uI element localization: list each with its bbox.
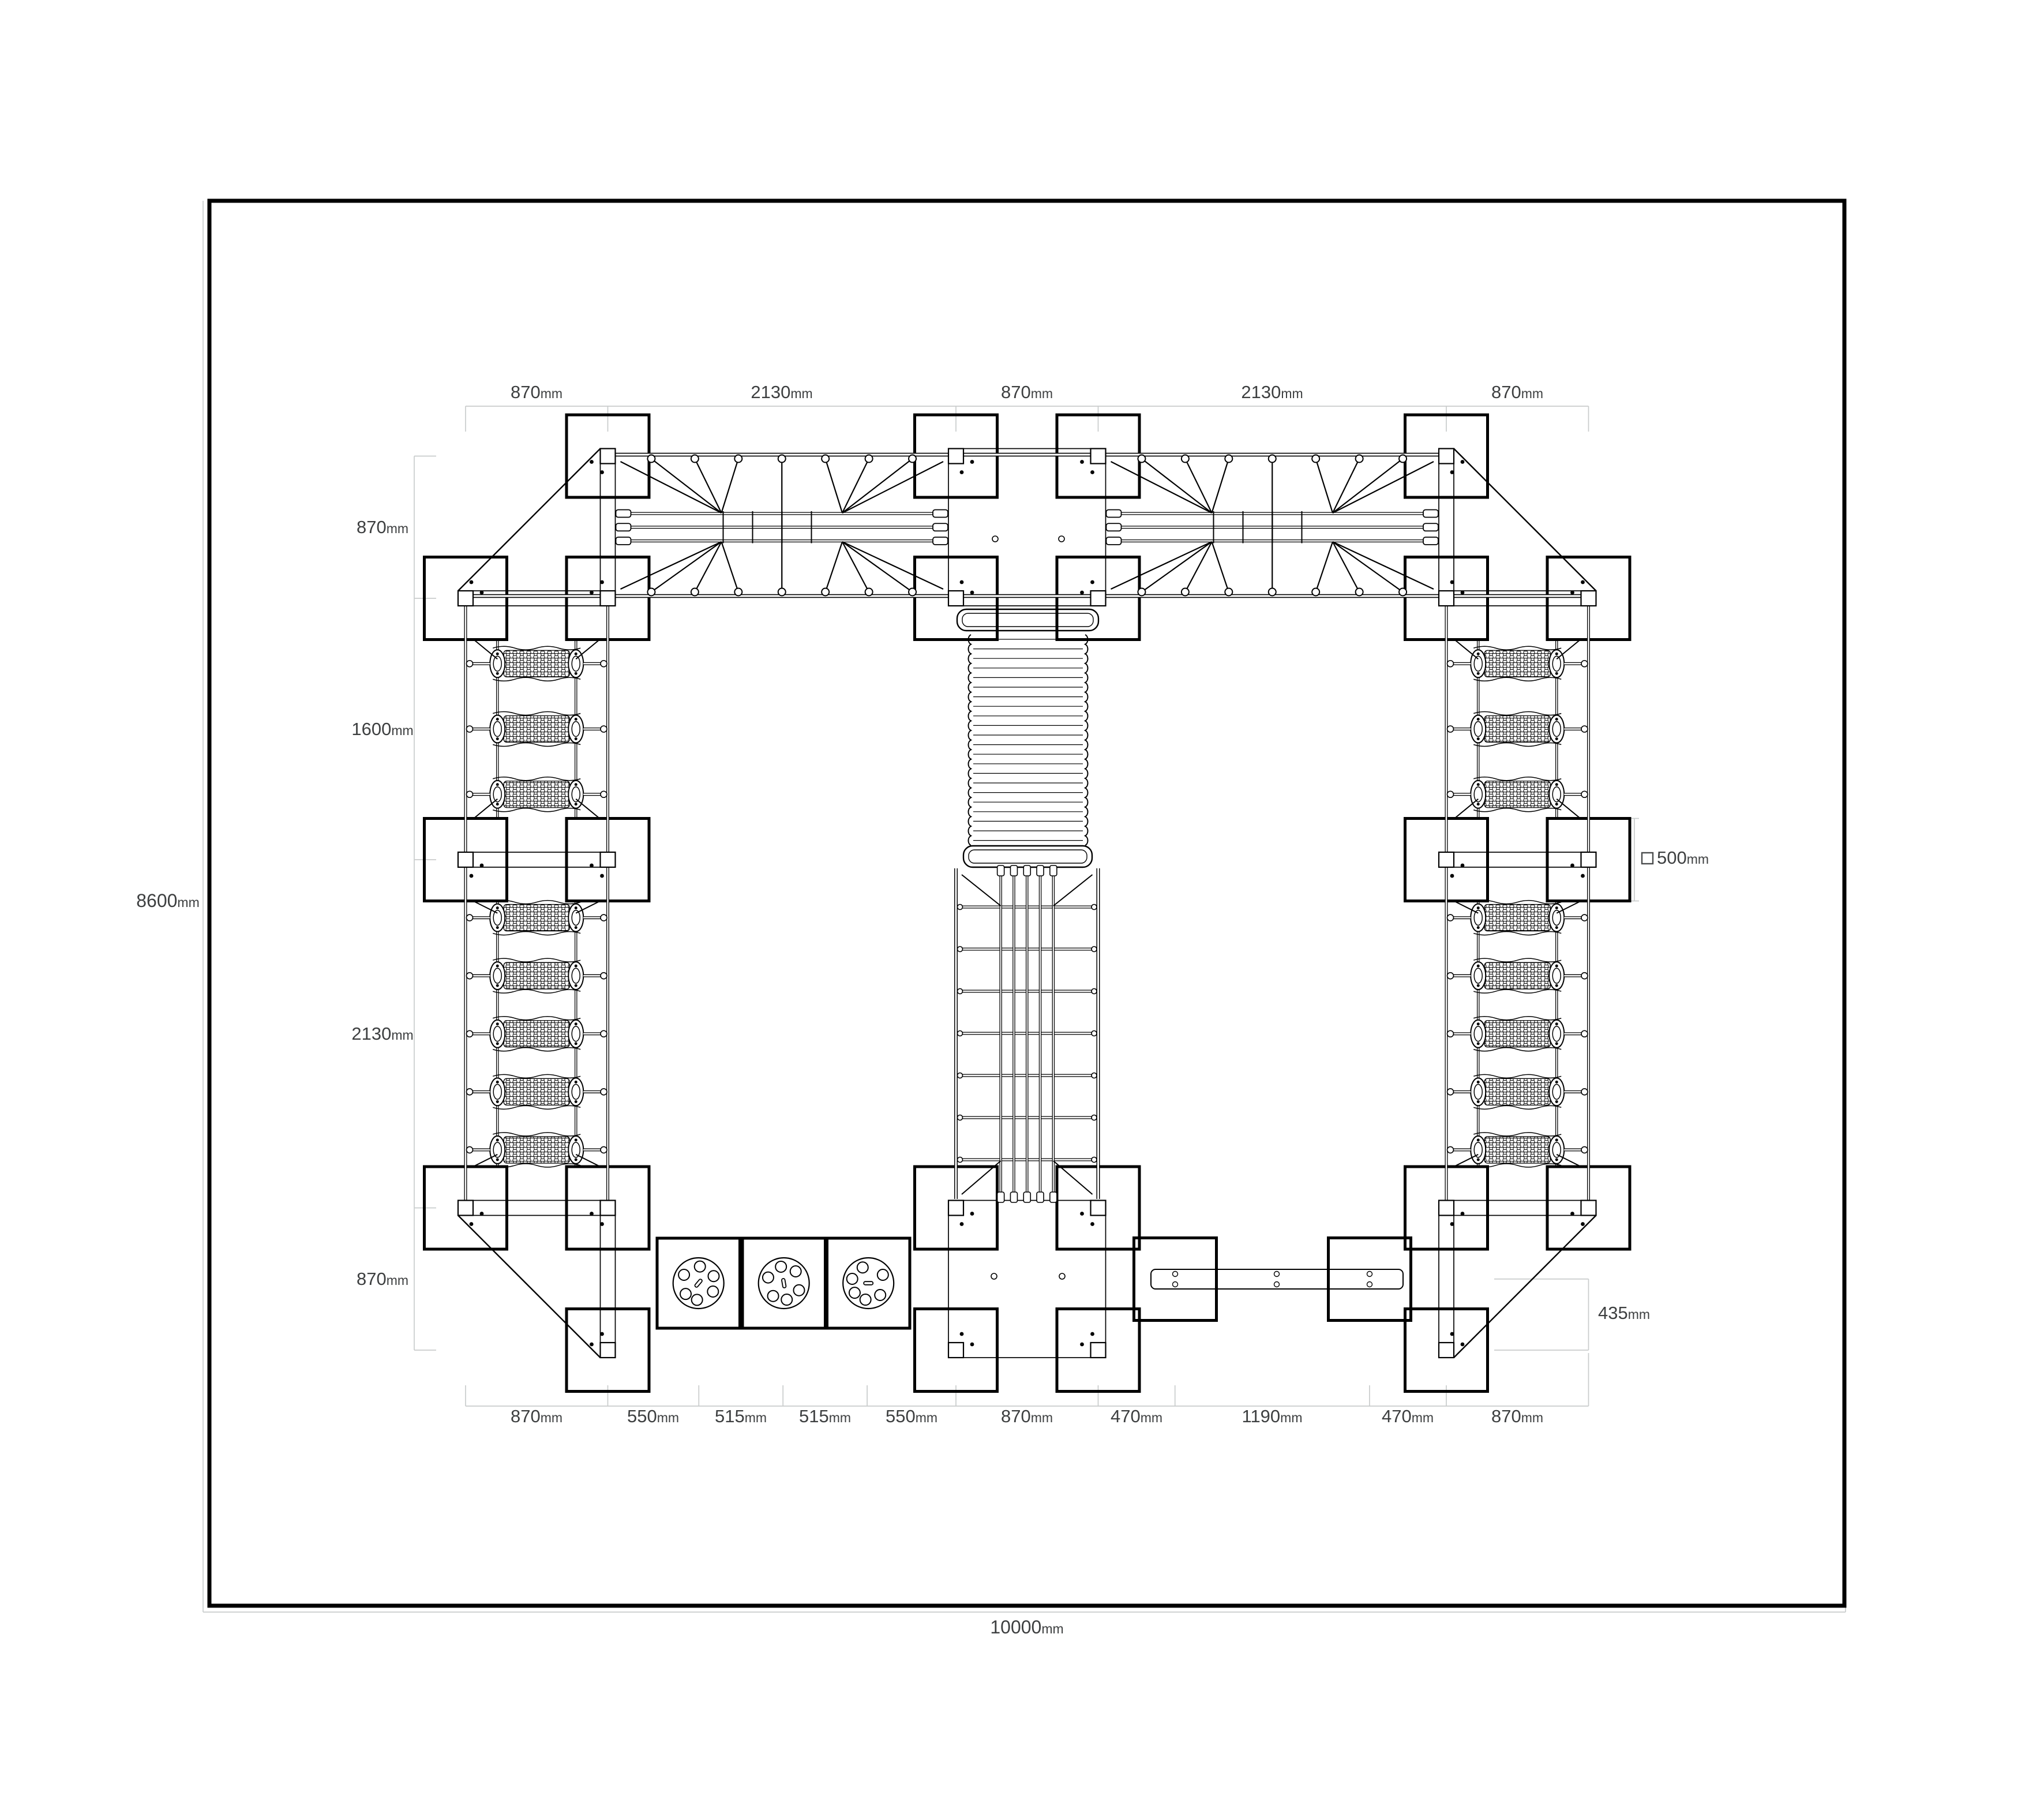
- hub-bolt: [1555, 737, 1558, 740]
- deck-bolt: [960, 1222, 964, 1226]
- axle-joint: [467, 661, 473, 667]
- post: [458, 852, 473, 867]
- dim-bottom-10: 870mm: [1491, 1406, 1543, 1426]
- deck-bolt: [590, 864, 594, 868]
- hub-bolt: [575, 1022, 577, 1025]
- hub-bolt: [496, 718, 499, 721]
- hub-bolt: [496, 1022, 499, 1025]
- post: [1581, 1201, 1596, 1216]
- post: [458, 1201, 473, 1216]
- hub-bolt: [1477, 653, 1480, 655]
- dim-bottom-6: 870mm: [1001, 1406, 1053, 1426]
- dim-bottom-8: 1190mm: [1242, 1406, 1303, 1426]
- net-rope: [722, 459, 738, 513]
- deck-bolt: [970, 591, 974, 595]
- spinner-hole: [857, 1262, 868, 1273]
- rope-eyelet: [1225, 455, 1232, 463]
- net-rope: [826, 459, 842, 513]
- deck-bolt: [992, 536, 998, 542]
- hub-bolt: [1477, 984, 1480, 987]
- step-contour: [493, 990, 580, 993]
- dim-bottom-7: 470mm: [1111, 1406, 1162, 1426]
- rung-joint: [1092, 1031, 1097, 1036]
- step-contour: [1473, 743, 1561, 747]
- end-rope: [1456, 799, 1478, 818]
- step-hub: [493, 722, 501, 737]
- hub-bolt: [1555, 965, 1558, 968]
- spinner-hole: [875, 1290, 886, 1300]
- cable-fitting: [933, 523, 948, 531]
- rope-eyelet: [865, 455, 873, 463]
- hub-bolt: [496, 783, 499, 786]
- step-contour: [1473, 1133, 1561, 1136]
- net-rope: [1142, 459, 1212, 513]
- spinner-hole: [692, 1294, 703, 1305]
- step-hub: [572, 968, 580, 983]
- spinner-hole: [860, 1294, 871, 1305]
- hub-bolt: [575, 1138, 577, 1141]
- deck-bolt: [1080, 591, 1084, 595]
- hub-bolt: [1555, 1158, 1558, 1161]
- hub-bolt: [575, 803, 577, 805]
- post: [948, 449, 963, 464]
- wobble-step: [504, 650, 569, 677]
- end-rope: [475, 799, 497, 818]
- hub-bolt: [575, 984, 577, 987]
- step-hub: [1552, 722, 1561, 737]
- rope-eyelet: [909, 455, 916, 463]
- hub-bolt: [1477, 1042, 1480, 1045]
- wobble-step: [504, 781, 569, 808]
- axle-joint: [1447, 1089, 1454, 1095]
- step-hub: [1474, 722, 1482, 737]
- spinner-hole: [708, 1270, 719, 1281]
- net-rope: [842, 459, 869, 513]
- hub-bolt: [1555, 1081, 1558, 1084]
- dim-left-2: 1600mm: [351, 719, 413, 739]
- crawl-tube-wall: [1085, 635, 1088, 845]
- step-contour: [493, 1133, 580, 1136]
- axle-joint: [1447, 915, 1454, 921]
- hub-bolt: [1477, 926, 1480, 929]
- strand-fork: [1010, 865, 1017, 876]
- step-contour: [1473, 1105, 1561, 1109]
- post: [601, 591, 616, 606]
- post: [601, 449, 616, 464]
- corner-barrier: [458, 1216, 601, 1358]
- net-rope: [651, 542, 722, 592]
- net-rope: [842, 542, 943, 589]
- crawl-tube-collar: [969, 850, 1087, 863]
- hub-bolt: [1477, 1138, 1480, 1141]
- step-contour: [493, 1048, 580, 1051]
- cable-fitting: [1107, 510, 1122, 518]
- wobble-step: [1484, 962, 1550, 989]
- deck-bolt: [1461, 864, 1465, 868]
- step-hub: [1552, 1084, 1561, 1099]
- axle-joint: [1581, 791, 1588, 797]
- net-rope: [1212, 459, 1229, 513]
- legend-post-size: 500mm: [1657, 848, 1709, 868]
- dim-right-435: 435mm: [1598, 1303, 1650, 1323]
- hub-bolt: [575, 653, 577, 655]
- deck-bolt: [1581, 1222, 1585, 1226]
- strand-fork: [1037, 865, 1044, 876]
- step-contour: [1473, 1048, 1561, 1051]
- rope-eyelet: [1182, 455, 1189, 463]
- post: [1581, 591, 1596, 606]
- hub-bolt: [575, 1100, 577, 1103]
- step-contour: [1473, 712, 1561, 715]
- net-rope: [695, 542, 721, 592]
- rope-eyelet: [1269, 455, 1276, 463]
- spinner-hole: [707, 1286, 718, 1297]
- net-brace: [1053, 875, 1093, 906]
- end-rope: [576, 640, 598, 659]
- post: [1439, 449, 1454, 464]
- spinner-hole: [793, 1285, 804, 1296]
- deck-bolt: [1090, 580, 1094, 584]
- spinner-hole: [847, 1273, 858, 1284]
- hub-bolt: [1477, 783, 1480, 786]
- deck-bolt: [1090, 1332, 1094, 1336]
- step-hub: [493, 1026, 501, 1041]
- net-rope: [621, 542, 722, 589]
- hub-bolt: [496, 672, 499, 675]
- rope-eyelet: [1312, 589, 1319, 596]
- rope-eyelet: [647, 589, 655, 596]
- deck-bolt: [1450, 470, 1454, 474]
- step-hub: [1552, 968, 1561, 983]
- rope-eyelet: [778, 455, 786, 463]
- net-rope: [842, 462, 943, 513]
- deck-bolt: [1581, 580, 1585, 584]
- net-rope: [695, 459, 721, 513]
- rung-joint: [1092, 947, 1097, 952]
- wobble-step: [1484, 1021, 1550, 1047]
- step-hub: [572, 1084, 580, 1099]
- hub-bolt: [496, 653, 499, 655]
- step-hub: [1552, 1026, 1561, 1041]
- spinner-hole: [781, 1294, 792, 1305]
- dim-bottom-2: 550mm: [627, 1406, 679, 1426]
- dim-bottom-3: 515mm: [715, 1406, 767, 1426]
- spinner-hole: [849, 1287, 860, 1298]
- post: [1091, 591, 1106, 606]
- end-rope: [576, 799, 598, 818]
- dim-top-5: 870mm: [1491, 382, 1543, 402]
- step-hub: [493, 968, 501, 983]
- post-pad: [1329, 1238, 1411, 1321]
- hub-bolt: [1555, 926, 1558, 929]
- axle-joint: [601, 973, 607, 979]
- hub-bolt: [496, 803, 499, 805]
- hub-bolt: [1555, 653, 1558, 655]
- rung-joint: [958, 1115, 963, 1120]
- hub-bolt: [575, 1081, 577, 1084]
- hub-bolt: [575, 926, 577, 929]
- hub-bolt: [1477, 672, 1480, 675]
- deck-bolt: [1080, 1212, 1084, 1216]
- axle-joint: [601, 726, 607, 732]
- step-contour: [1473, 958, 1561, 962]
- deck-bolt: [1450, 1222, 1454, 1226]
- wobble-step: [504, 962, 569, 989]
- deck-bolt: [960, 470, 964, 474]
- wobble-step: [504, 716, 569, 743]
- hub-bolt: [1555, 672, 1558, 675]
- crawl-tube-collar: [963, 846, 1092, 867]
- post-legend-icon: [1642, 853, 1653, 864]
- cable-fitting: [933, 510, 948, 518]
- axle-joint: [1581, 726, 1588, 732]
- dim-bottom-5: 550mm: [886, 1406, 937, 1426]
- corner-barrier: [1454, 449, 1596, 591]
- axle-joint: [601, 661, 607, 667]
- step-contour: [493, 1105, 580, 1109]
- deck-bolt: [1080, 1343, 1084, 1347]
- post: [1439, 591, 1454, 606]
- rope-eyelet: [647, 455, 655, 463]
- wobble-step: [1484, 1078, 1550, 1105]
- deck-bolt: [1581, 874, 1585, 878]
- deck-bolt: [1059, 1273, 1065, 1279]
- step-contour: [493, 958, 580, 962]
- deck-bolt: [1450, 580, 1454, 584]
- hub-bolt: [575, 965, 577, 968]
- net-rope: [1185, 459, 1212, 513]
- post: [458, 591, 473, 606]
- deck-bolt: [600, 1222, 604, 1226]
- hub-bolt: [1477, 1081, 1480, 1084]
- post: [1091, 449, 1106, 464]
- post: [601, 852, 616, 867]
- deck-bolt: [1570, 591, 1574, 595]
- hub-bolt: [1555, 1042, 1558, 1045]
- net-rope: [1333, 542, 1359, 592]
- rope-eyelet: [1399, 455, 1407, 463]
- wobble-step: [504, 1021, 569, 1047]
- axle-joint: [1581, 661, 1588, 667]
- deck-bolt: [1090, 1222, 1094, 1226]
- net-rope: [1111, 462, 1212, 513]
- end-rope: [1557, 640, 1579, 659]
- axle-joint: [467, 1146, 473, 1153]
- corner-barrier: [1454, 1216, 1596, 1358]
- post: [948, 591, 963, 606]
- cable-fitting: [1423, 537, 1438, 545]
- deck-bolt: [480, 1212, 484, 1216]
- step-hub: [1474, 1084, 1482, 1099]
- wobble-step: [1484, 1137, 1550, 1163]
- dim-left-1: 870mm: [357, 517, 408, 537]
- hub-bolt: [496, 1138, 499, 1141]
- deck-bolt: [1450, 1332, 1454, 1336]
- step-hub: [493, 1084, 501, 1099]
- rope-eyelet: [1225, 589, 1232, 596]
- hub-bolt: [575, 1042, 577, 1045]
- hub-bolt: [496, 1081, 499, 1084]
- crawl-tube-collar: [962, 613, 1093, 627]
- axle-joint: [1581, 973, 1588, 979]
- post: [1439, 1201, 1454, 1216]
- strand-fork: [1037, 1192, 1044, 1202]
- strand-fork: [997, 865, 1004, 876]
- step-contour: [1473, 990, 1561, 993]
- beam-bolt: [1367, 1272, 1372, 1277]
- plan-drawing: 870mm 2130mm 870mm 2130mm 870mm 870mm 16…: [0, 0, 2044, 1799]
- dim-top-1: 870mm: [511, 382, 562, 402]
- deck-bolt: [600, 470, 604, 474]
- strand-fork: [1010, 1192, 1017, 1202]
- axle-joint: [1581, 1146, 1588, 1153]
- net-rope: [1111, 542, 1212, 589]
- step-contour: [1473, 808, 1561, 812]
- strand-fork: [997, 1192, 1004, 1202]
- cable-fitting: [1107, 523, 1122, 531]
- deck-bolt: [590, 591, 594, 595]
- deck-bolt: [970, 1212, 974, 1216]
- net-rope: [1333, 542, 1403, 592]
- deck-bolt: [1450, 874, 1454, 878]
- step-contour: [1473, 1017, 1561, 1020]
- strand-fork: [1023, 865, 1030, 876]
- hub-bolt: [1477, 906, 1480, 909]
- dim-bottom-9: 470mm: [1382, 1406, 1434, 1426]
- strand-fork: [1023, 1192, 1030, 1202]
- deck-bolt: [970, 460, 974, 464]
- hub-bolt: [1477, 718, 1480, 721]
- deck-bolt: [1059, 536, 1064, 542]
- rung-joint: [1092, 989, 1097, 994]
- net-rope: [1316, 459, 1333, 513]
- step-contour: [1473, 932, 1561, 935]
- hub-bolt: [1477, 1158, 1480, 1161]
- spinner-hole: [763, 1272, 774, 1283]
- cable-fitting: [1423, 510, 1438, 518]
- hub-bolt: [496, 737, 499, 740]
- cable-fitting: [616, 537, 631, 545]
- post: [601, 1201, 616, 1216]
- end-rope: [1456, 640, 1478, 659]
- hub-bolt: [575, 783, 577, 786]
- spinner-hole: [877, 1269, 888, 1280]
- deck-bolt: [600, 1332, 604, 1336]
- rung-joint: [1092, 1073, 1097, 1078]
- hub-bolt: [1477, 965, 1480, 968]
- spinner-hole: [680, 1288, 691, 1299]
- hub-bolt: [496, 984, 499, 987]
- beam-bolt: [1367, 1282, 1372, 1287]
- hub-bolt: [575, 1158, 577, 1161]
- rope-eyelet: [1138, 589, 1145, 596]
- rung-joint: [958, 1031, 963, 1036]
- deck-bolt: [1461, 460, 1465, 464]
- axle-joint: [1447, 1030, 1454, 1037]
- cable-fitting: [616, 523, 631, 531]
- beam-bolt: [1173, 1272, 1178, 1277]
- cable-fitting: [1107, 537, 1122, 545]
- step-hub: [1474, 968, 1482, 983]
- spinner-hole: [768, 1291, 779, 1302]
- axle-joint: [1581, 1089, 1588, 1095]
- dim-left-3: 2130mm: [351, 1024, 413, 1044]
- hub-bolt: [496, 965, 499, 968]
- deck-bolt: [991, 1273, 997, 1279]
- rope-eyelet: [1356, 455, 1363, 463]
- hub-bolt: [1555, 1022, 1558, 1025]
- dim-overall-height: 8600mm: [136, 890, 200, 911]
- beam-bolt: [1274, 1282, 1280, 1287]
- wobble-step: [1484, 781, 1550, 808]
- rope-eyelet: [822, 455, 829, 463]
- post: [948, 1343, 963, 1358]
- step-contour: [1473, 1074, 1561, 1078]
- hub-bolt: [575, 906, 577, 909]
- net-rope: [1333, 462, 1434, 513]
- dim-overall-width: 10000mm: [990, 1617, 1063, 1637]
- hub-bolt: [496, 1100, 499, 1103]
- axle-joint: [467, 915, 473, 921]
- deck-bolt: [600, 580, 604, 584]
- axle-joint: [467, 973, 473, 979]
- net-rope: [842, 542, 869, 592]
- hub-bolt: [1477, 1100, 1480, 1103]
- strand-fork: [1050, 865, 1057, 876]
- hub-bolt: [496, 1042, 499, 1045]
- step-contour: [493, 932, 580, 935]
- cable-fitting: [933, 537, 948, 545]
- net-rope: [1212, 542, 1229, 592]
- net-rope: [842, 459, 913, 513]
- axle-joint: [467, 726, 473, 732]
- rope-eyelet: [1399, 589, 1407, 596]
- net-rope: [1142, 542, 1212, 592]
- step-contour: [1473, 777, 1561, 781]
- axle-joint: [601, 791, 607, 797]
- rope-eyelet: [734, 455, 742, 463]
- wobble-step: [504, 1137, 569, 1163]
- deck-bolt: [1461, 1343, 1465, 1347]
- wobble-step: [1484, 716, 1550, 743]
- beam-bolt: [1274, 1272, 1280, 1277]
- rope-eyelet: [778, 589, 786, 596]
- deck-bolt: [1570, 1212, 1574, 1216]
- cable-fitting: [616, 510, 631, 518]
- axle-joint: [1581, 1030, 1588, 1037]
- step-contour: [493, 808, 580, 812]
- hub-bolt: [1555, 906, 1558, 909]
- rope-eyelet: [1269, 589, 1276, 596]
- rope-eyelet: [822, 589, 829, 596]
- deck-bolt: [590, 460, 594, 464]
- step-contour: [1473, 646, 1561, 650]
- end-rope: [1557, 799, 1579, 818]
- hub-bolt: [575, 737, 577, 740]
- step-contour: [493, 1017, 580, 1020]
- step-contour: [493, 777, 580, 781]
- axle-joint: [1447, 973, 1454, 979]
- spinner-hole: [695, 1261, 706, 1272]
- wobble-step: [504, 1078, 569, 1105]
- hub-bolt: [1477, 1022, 1480, 1025]
- deck-bolt: [1090, 470, 1094, 474]
- spinner-hole: [775, 1261, 786, 1272]
- platform-deck: [948, 449, 1106, 606]
- rung-joint: [1092, 1157, 1097, 1163]
- post-pad: [1134, 1238, 1217, 1321]
- rope-eyelet: [691, 455, 699, 463]
